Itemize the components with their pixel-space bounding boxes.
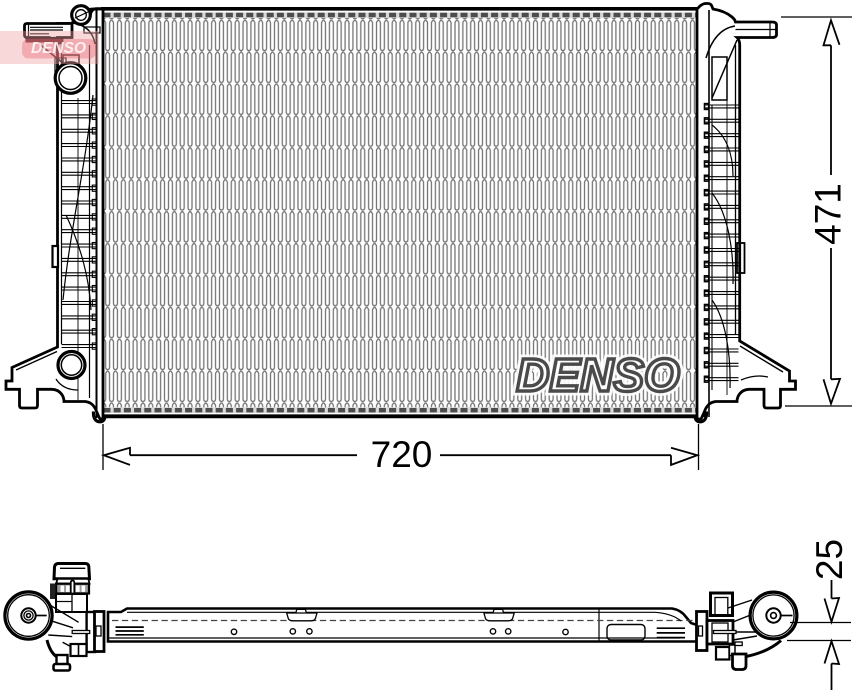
svg-text:DENSO: DENSO [31,40,86,57]
svg-text:720: 720 [371,434,433,475]
svg-text:471: 471 [808,183,849,245]
svg-text:25: 25 [809,539,850,580]
svg-text:DENSO: DENSO [516,349,680,401]
